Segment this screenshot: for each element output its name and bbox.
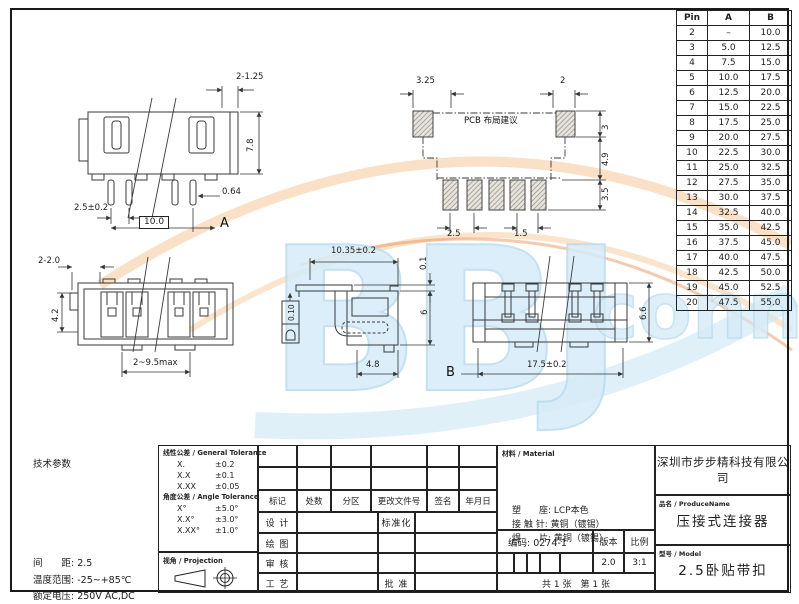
tolerance-row: X. ±0.2 — [163, 459, 253, 470]
dim-side-height: 6 — [421, 310, 430, 315]
tolerance-value: ±0.05 — [215, 481, 240, 492]
dim-front-top: 2-1.25 — [236, 73, 263, 82]
view-label-a: A — [220, 216, 229, 231]
b-cell: 27.5 — [750, 131, 792, 146]
tech-params-lines: 间 距: 2.5温度范围: -25~+85℃额定电压: 250V AC,DC额定… — [33, 507, 145, 604]
first-angle-projection-icon — [159, 567, 255, 591]
pin-cell: 14 — [677, 206, 708, 221]
scale-label: 比例 — [624, 530, 655, 553]
standardization-label: 标准化 — [378, 512, 415, 533]
tolerance-row: X.X° ±3.0° — [163, 514, 253, 525]
a-cell: 45.0 — [708, 281, 750, 296]
a-cell: 32.5 — [708, 206, 750, 221]
dim-front-pitch: 2.5±0.2 — [74, 204, 108, 213]
dim-pcb-bottom-2: 1.5 — [514, 230, 528, 239]
a-cell: 25.0 — [708, 161, 750, 176]
blank-cell — [497, 553, 514, 573]
dim-pcb-right-3: 3.5 — [602, 187, 611, 201]
b-cell: 35.0 — [750, 176, 792, 191]
table-row: 2 – 10.0 — [677, 26, 792, 41]
revision-empty-cell — [427, 445, 459, 467]
tolerance-key: X.X° — [163, 514, 215, 525]
a-cell: 15.0 — [708, 101, 750, 116]
a-cell: 10.0 — [708, 71, 750, 86]
revision-empty-cell — [459, 467, 497, 490]
dim-side-foot: 4.8 — [366, 361, 380, 370]
model-label: 型号 / Model — [659, 548, 701, 558]
b-cell: 15.0 — [750, 56, 792, 71]
a-cell: 7.5 — [708, 56, 750, 71]
pin-cell: 16 — [677, 236, 708, 251]
b-cell: 17.5 — [750, 71, 792, 86]
table-row: 5 10.0 17.5 — [677, 71, 792, 86]
dim-pcb-right-1: 3 — [602, 125, 611, 130]
pin-table-header: Pin A B — [677, 11, 792, 26]
table-row: 10 22.5 30.0 — [677, 146, 792, 161]
material-line: 塑 座: LCP本色 — [512, 504, 654, 518]
revision-empty-cell — [415, 533, 497, 553]
a-cell: 30.0 — [708, 191, 750, 206]
pin-table: Pin A B 2 – 10.0 3 5.0 12.5 4 7.5 15.0 5… — [676, 10, 792, 311]
b-cell: 40.0 — [750, 206, 792, 221]
revision-empty-cell — [297, 467, 331, 490]
pin-cell: 15 — [677, 221, 708, 236]
dim-side-step: 0.1 — [420, 256, 429, 270]
dim-pcb-right-2: 4.9 — [602, 152, 611, 166]
b-cell: 47.5 — [750, 251, 792, 266]
check-label: 审 核 — [258, 553, 297, 573]
tolerance-value: ±0.1 — [215, 470, 234, 481]
revision-header-sign: 签名 — [427, 490, 459, 512]
pin-table-body: 2 – 10.0 3 5.0 12.5 4 7.5 15.0 5 10.0 17… — [677, 26, 792, 311]
pin-table-header-pin: Pin — [677, 11, 708, 26]
pin-cell: 12 — [677, 176, 708, 191]
b-cell: 22.5 — [750, 101, 792, 116]
company-name: 深圳市步步精科技有限公司 — [655, 445, 791, 495]
pcb-view-title: PCB 布局建议 — [464, 114, 518, 126]
table-row: 4 7.5 15.0 — [677, 56, 792, 71]
doc-code: 编码: 0274-1 — [497, 530, 593, 553]
revision-empty-cell — [258, 445, 297, 467]
tolerance-value: ±0.2 — [215, 459, 234, 470]
b-cell: 12.5 — [750, 41, 792, 56]
revision-empty-cell — [378, 533, 415, 553]
tolerance-block: 线性公差 / General Tolerance X. ±0.2 X.X ±0.… — [158, 445, 258, 552]
dim-top-range: 2~9.5max — [133, 359, 178, 368]
b-cell: 45.0 — [750, 236, 792, 251]
dim-bottom-height: 6.6 — [640, 306, 649, 320]
process-label: 工 艺 — [258, 573, 297, 593]
table-row: 12 27.5 35.0 — [677, 176, 792, 191]
tolerance-row: X.XX° ±1.0° — [163, 525, 253, 536]
dim-front-span: 10.0 — [139, 216, 169, 229]
a-cell: 20.0 — [708, 131, 750, 146]
pin-cell: 19 — [677, 281, 708, 296]
table-row: 16 37.5 45.0 — [677, 236, 792, 251]
table-row: 11 25.0 32.5 — [677, 161, 792, 176]
b-cell: 42.5 — [750, 221, 792, 236]
blank-cell — [527, 553, 540, 573]
b-cell: 52.5 — [750, 281, 792, 296]
pin-cell: 6 — [677, 86, 708, 101]
a-cell: 5.0 — [708, 41, 750, 56]
tolerance-row: X.X ±0.1 — [163, 470, 253, 481]
angle-tolerance-rows: X° ±5.0° X.X° ±3.0° X.XX° ±1.0° — [163, 503, 253, 536]
pin-cell: 3 — [677, 41, 708, 56]
version-value: 2.0 — [593, 553, 624, 573]
table-row: 8 17.5 25.0 — [677, 116, 792, 131]
tech-param-line: 间 距: 2.5 — [33, 556, 145, 573]
revision-empty-cell — [415, 553, 497, 573]
version-label: 版本 — [593, 530, 624, 553]
material-label: 材料 / Material — [498, 446, 654, 460]
a-cell: 37.5 — [708, 236, 750, 251]
angle-tolerance-label: 角度公差 / Angle Tolerance — [163, 492, 253, 503]
blank-cell — [540, 553, 560, 573]
revision-empty-cell — [331, 445, 371, 467]
revision-empty-cell — [427, 467, 459, 490]
dim-front-height: 7.8 — [247, 138, 256, 152]
projection-block: 视角 / Projection — [158, 552, 258, 593]
product-block: 品名 / ProduceName 压接式连接器 — [655, 495, 791, 545]
title-block: 线性公差 / General Tolerance X. ±0.2 X.X ±0.… — [158, 445, 791, 593]
tolerance-row: X° ±5.0° — [163, 503, 253, 514]
b-cell: 30.0 — [750, 146, 792, 161]
draw-sign-cell — [297, 533, 378, 553]
b-cell: 10.0 — [750, 26, 792, 41]
revision-empty-cell — [371, 467, 427, 490]
tolerance-key: X.X — [163, 470, 215, 481]
a-cell: – — [708, 26, 750, 41]
revision-header-docno: 更改文件号 — [371, 490, 427, 512]
check-sign-cell — [297, 553, 378, 573]
table-row: 20 47.5 55.0 — [677, 296, 792, 311]
a-cell: 42.5 — [708, 266, 750, 281]
revision-header-date: 年月日 — [459, 490, 497, 512]
sheet-count: 共 1 张 第 1 张 — [497, 573, 655, 593]
revision-empty-cell — [378, 553, 415, 573]
dim-side-flatness: 0.10 — [287, 304, 296, 321]
tolerance-value: ±1.0° — [215, 525, 238, 536]
table-row: 18 42.5 50.0 — [677, 266, 792, 281]
side-view — [282, 285, 398, 352]
standardization-sign-cell — [415, 512, 497, 533]
revision-header-zone: 分区 — [331, 490, 371, 512]
tech-params-title: 技术参数 — [33, 457, 145, 474]
approve-sign-cell — [415, 573, 497, 593]
tolerance-key: X.XX° — [163, 525, 215, 536]
table-row: 7 15.0 22.5 — [677, 101, 792, 116]
pin-cell: 2 — [677, 26, 708, 41]
a-cell: 17.5 — [708, 116, 750, 131]
dim-bottom-width: 17.5±0.2 — [527, 361, 567, 370]
a-cell: 27.5 — [708, 176, 750, 191]
blank-cell — [560, 553, 593, 573]
design-sign-cell — [297, 512, 378, 533]
top-view — [70, 257, 233, 352]
b-cell: 50.0 — [750, 266, 792, 281]
a-cell: 40.0 — [708, 251, 750, 266]
blank-cell — [514, 553, 527, 573]
pin-table-header-a: A — [708, 11, 750, 26]
pin-cell: 13 — [677, 191, 708, 206]
table-row: 14 32.5 40.0 — [677, 206, 792, 221]
tolerance-value: ±5.0° — [215, 503, 238, 514]
revision-empty-cell — [331, 467, 371, 490]
view-label-b: B — [446, 365, 455, 380]
table-row: 19 45.0 52.5 — [677, 281, 792, 296]
design-label: 设 计 — [258, 512, 297, 533]
a-cell: 22.5 — [708, 146, 750, 161]
revision-header-mark: 标记 — [258, 490, 297, 512]
pin-cell: 20 — [677, 296, 708, 311]
tolerance-value: ±3.0° — [215, 514, 238, 525]
tech-param-line: 温度范围: -25~+85℃ — [33, 573, 145, 590]
b-cell: 32.5 — [750, 161, 792, 176]
revision-empty-cell — [371, 445, 427, 467]
pin-cell: 5 — [677, 71, 708, 86]
pin-cell: 8 — [677, 116, 708, 131]
projection-label: 视角 / Projection — [159, 553, 257, 567]
linear-tolerance-label: 线性公差 / General Tolerance — [163, 448, 253, 459]
model-block: 型号 / Model 2.5卧贴带扣 — [655, 545, 791, 593]
revision-empty-cell — [459, 445, 497, 467]
b-cell: 25.0 — [750, 116, 792, 131]
tolerance-key: X. — [163, 459, 215, 470]
pin-cell: 7 — [677, 101, 708, 116]
front-view — [79, 98, 238, 218]
revision-empty-cell — [258, 467, 297, 490]
dim-top-height: 4.2 — [52, 308, 61, 322]
a-cell: 47.5 — [708, 296, 750, 311]
dim-front-pin: 0.64 — [222, 188, 241, 197]
table-row: 17 40.0 47.5 — [677, 251, 792, 266]
b-cell: 55.0 — [750, 296, 792, 311]
product-label: 品名 / ProduceName — [659, 498, 730, 508]
table-row: 3 5.0 12.5 — [677, 41, 792, 56]
tolerance-row: X.XX ±0.05 — [163, 481, 253, 492]
dim-pcb-pad-left: 3.25 — [416, 77, 435, 86]
material-block: 材料 / Material 塑 座: LCP本色接 触 针: 黄铜（镀锡）焊 片… — [497, 445, 655, 530]
b-cell: 20.0 — [750, 86, 792, 101]
linear-tolerance-rows: X. ±0.2 X.X ±0.1 X.XX ±0.05 — [163, 459, 253, 492]
tech-params: 技术参数 间 距: 2.5温度范围: -25~+85℃额定电压: 250V AC… — [33, 424, 145, 604]
table-row: 9 20.0 27.5 — [677, 131, 792, 146]
pin-cell: 10 — [677, 146, 708, 161]
a-cell: 35.0 — [708, 221, 750, 236]
approve-label: 批 准 — [378, 573, 415, 593]
dim-pcb-pad-right: 2 — [560, 77, 565, 86]
pin-cell: 4 — [677, 56, 708, 71]
table-row: 13 30.0 37.5 — [677, 191, 792, 206]
revision-header-count: 处数 — [297, 490, 331, 512]
dim-top-tab: 2-2.0 — [38, 257, 60, 266]
pin-cell: 11 — [677, 161, 708, 176]
pin-cell: 9 — [677, 131, 708, 146]
process-sign-cell — [297, 573, 378, 593]
dim-side-width: 10.35±0.2 — [331, 247, 376, 256]
drawing-sheet: BBJ conn — [0, 0, 799, 604]
tolerance-key: X° — [163, 503, 215, 514]
draw-label: 绘 图 — [258, 533, 297, 553]
revision-empty-cell — [297, 445, 331, 467]
table-row: 15 35.0 42.5 — [677, 221, 792, 236]
pin-table-header-b: B — [750, 11, 792, 26]
table-row: 6 12.5 20.0 — [677, 86, 792, 101]
b-cell: 37.5 — [750, 191, 792, 206]
scale-value: 3:1 — [624, 553, 655, 573]
bottom-view — [473, 256, 627, 352]
side-view-dimensions — [290, 258, 478, 378]
a-cell: 12.5 — [708, 86, 750, 101]
pin-cell: 18 — [677, 266, 708, 281]
tech-param-line: 额定电压: 250V AC,DC — [33, 589, 145, 604]
tolerance-key: X.XX — [163, 481, 215, 492]
dim-pcb-bottom-1: 2.5 — [447, 230, 461, 239]
pin-cell: 17 — [677, 251, 708, 266]
